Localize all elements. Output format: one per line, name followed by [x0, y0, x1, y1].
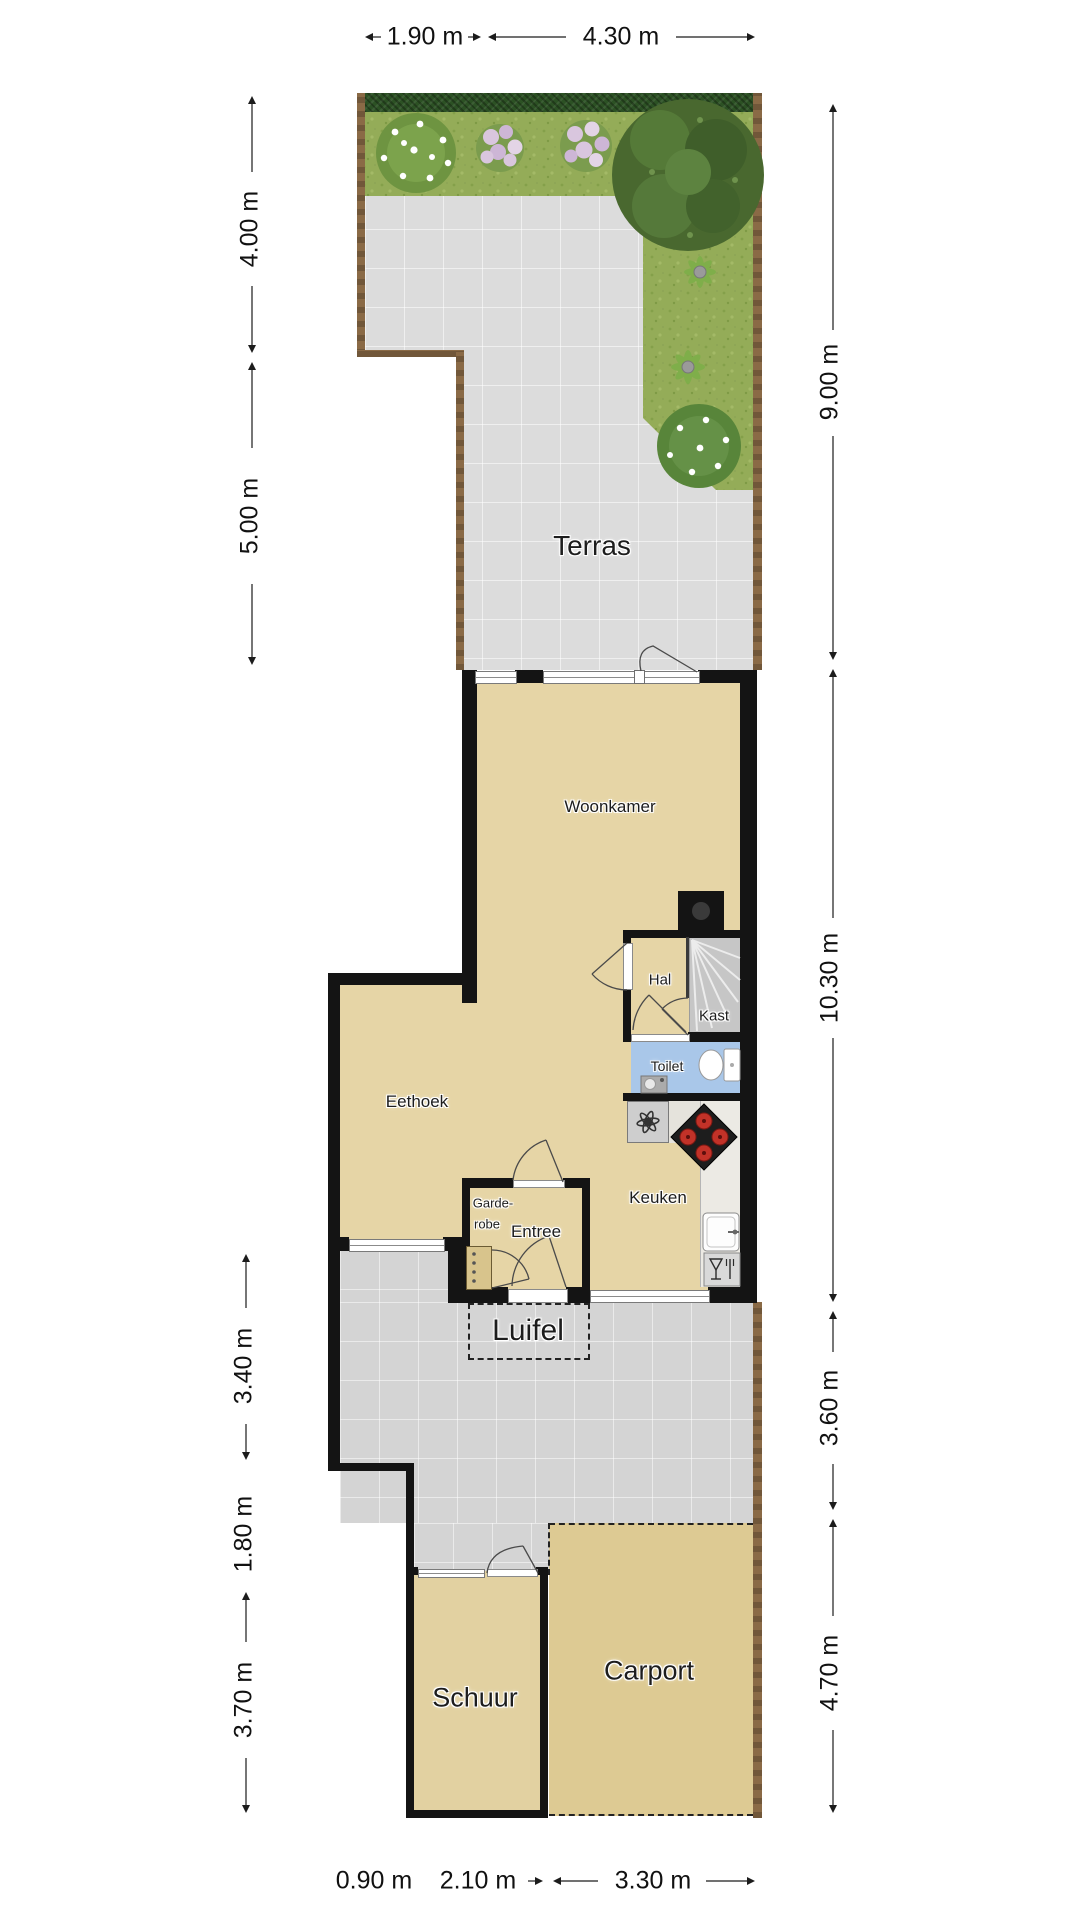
plan-overlay: [0, 0, 1080, 1920]
extractor-fan-icon: [637, 1111, 660, 1134]
kitchen-sink-icon: [703, 1213, 739, 1251]
dimension-label-330: 3.30 m: [612, 1867, 694, 1896]
room-label-keuken: Keuken: [629, 1188, 687, 1208]
room-label-entree: Entree: [511, 1222, 561, 1242]
fern-icon: [684, 256, 716, 288]
dimension-label-430: 4.30 m: [580, 23, 662, 52]
room-label-woonkamer: Woonkamer: [564, 797, 655, 817]
floorplan-canvas: Terras Woonkamer Hal Kast Toilet Eethoek…: [0, 0, 1080, 1920]
area-label-carport: Carport: [604, 1656, 694, 1687]
flower-bush-icon: [376, 113, 456, 193]
dimension-label-090: 0.90 m: [333, 1867, 415, 1896]
room-label-hal: Hal: [649, 972, 672, 989]
dimension-label-370: 3.70 m: [230, 1659, 259, 1741]
stove-icon: [671, 1104, 737, 1170]
area-label-luifel: Luifel: [492, 1314, 564, 1348]
room-label-terras: Terras: [553, 530, 631, 562]
door-swing-icon: [487, 646, 697, 1573]
dimension-label-500: 5.00 m: [236, 475, 265, 557]
flower-bush-icon: [657, 404, 741, 488]
tree-icon: [612, 99, 764, 251]
room-label-schuur: Schuur: [432, 1683, 518, 1714]
wardrobe-icon: [472, 1252, 476, 1283]
room-label-kast: Kast: [699, 1008, 729, 1025]
hand-basin-icon: [641, 1076, 667, 1093]
pink-flowers-icon: [560, 120, 612, 172]
chimney-icon: [692, 902, 710, 920]
dimension-label-340: 3.40 m: [230, 1325, 259, 1407]
room-label-garderobe-line2: robe: [474, 1214, 500, 1235]
dishwasher-icon: [704, 1253, 740, 1286]
fern-icon: [671, 350, 705, 384]
dimension-label-180: 1.80 m: [230, 1493, 259, 1575]
dimension-label-360: 3.60 m: [816, 1367, 845, 1449]
toilet-icon: [699, 1049, 740, 1081]
dimension-label-190: 1.90 m: [384, 23, 466, 52]
dimension-label-210: 2.10 m: [437, 1867, 519, 1896]
room-label-eethoek: Eethoek: [386, 1092, 448, 1112]
pink-flowers-icon: [476, 124, 524, 172]
dimension-label-900: 9.00 m: [816, 341, 845, 423]
room-label-garderobe-line1: Garde-: [473, 1193, 513, 1214]
dimension-label-1030: 10.30 m: [816, 930, 845, 1026]
room-label-toilet: Toilet: [651, 1058, 684, 1074]
dimension-label-470: 4.70 m: [816, 1632, 845, 1714]
dimension-label-400: 4.00 m: [236, 188, 265, 270]
carport-dashed-left-edge: [548, 1523, 550, 1575]
